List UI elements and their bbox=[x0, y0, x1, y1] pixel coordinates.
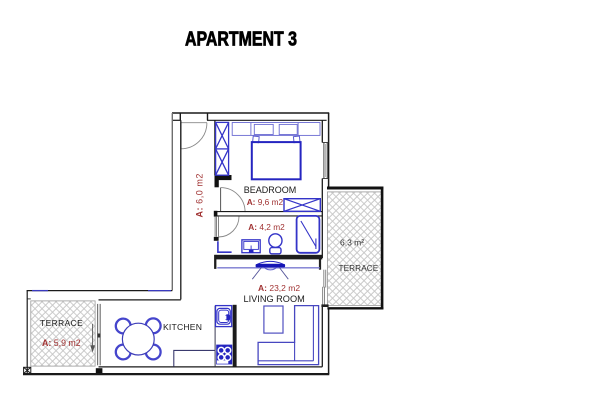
svg-text:A: 4,2 m2: A: 4,2 m2 bbox=[248, 222, 285, 232]
svg-text:A: 5,9 m2: A: 5,9 m2 bbox=[42, 338, 81, 348]
svg-text:A: 6,0 m2: A: 6,0 m2 bbox=[194, 173, 204, 217]
svg-text:APARTMENT 3: APARTMENT 3 bbox=[185, 28, 297, 50]
svg-text:A: 9,6 m2: A: 9,6 m2 bbox=[247, 197, 284, 207]
svg-text:TERRACE: TERRACE bbox=[339, 264, 379, 273]
svg-text:A: 23,2 m2: A: 23,2 m2 bbox=[258, 283, 300, 293]
svg-text:BEADROOM: BEADROOM bbox=[244, 185, 297, 195]
svg-text:6,3 m²: 6,3 m² bbox=[340, 237, 364, 247]
svg-text:KITCHEN: KITCHEN bbox=[163, 322, 202, 332]
svg-text:LIVING ROOM: LIVING ROOM bbox=[244, 294, 305, 304]
svg-text:TERRACE: TERRACE bbox=[40, 318, 83, 328]
